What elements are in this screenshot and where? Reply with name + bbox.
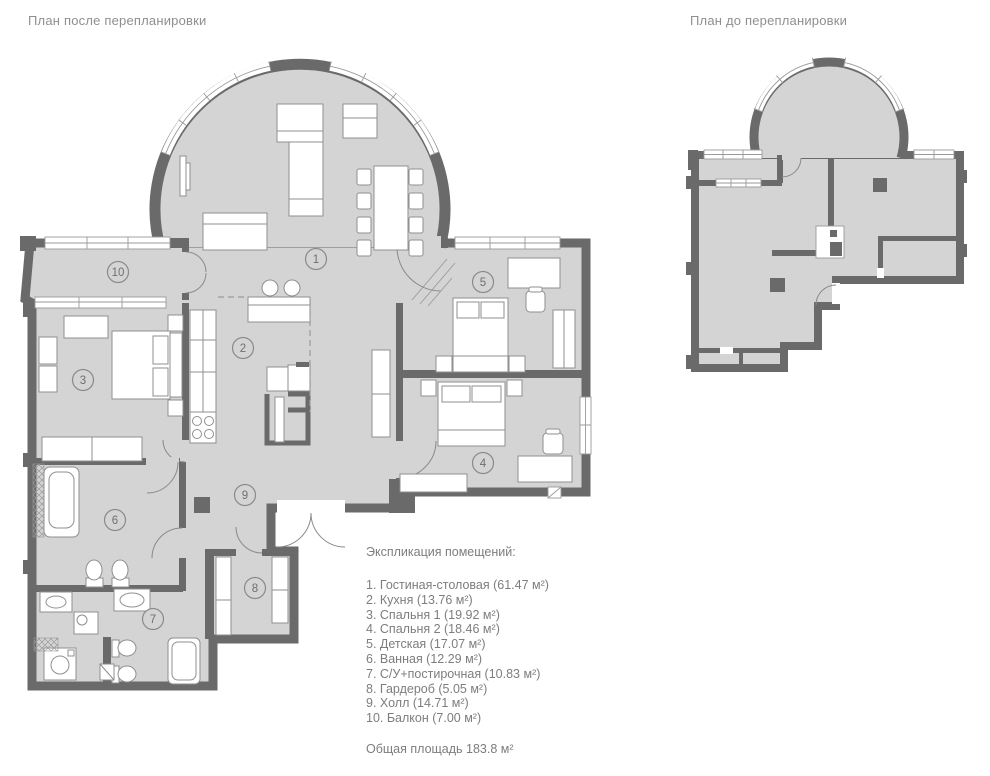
svg-text:8: 8 [252,583,258,595]
legend: Экспликация помещений: 1. Гостиная-столо… [366,545,606,756]
pillar [770,278,785,292]
nightstand [168,400,183,416]
nightstand [507,380,522,396]
pantry-shelf [275,397,284,442]
marker-room-4: 4 [473,453,494,474]
armchair [343,104,377,138]
room-hall-furniture [372,350,390,437]
old-shaft [816,226,844,258]
marker-room-10: 10 [108,262,129,283]
bar-counter [248,297,310,322]
nightstand [436,356,452,372]
legend-items: 1. Гостиная-столовая (61.47 м²) 2. Кухня… [366,578,606,726]
svg-text:4: 4 [480,458,487,470]
vanity [40,592,72,612]
pillar [873,178,887,192]
legend-item: 2. Кухня (13.76 м²) [366,593,606,608]
marker-room-7: 7 [143,609,164,630]
desk [508,258,560,288]
marker-room-3: 3 [73,370,94,391]
marker-room-1: 1 [306,249,327,270]
sink-counter [114,589,150,611]
svg-text:5: 5 [480,277,486,289]
sofa-2 [203,213,267,250]
legend-item: 5. Детская (17.07 м²) [366,637,606,652]
legend-item: 1. Гостиная-столовая (61.47 м²) [366,578,606,593]
plan-before [686,58,967,369]
svg-text:1: 1 [313,254,319,266]
dresser [64,316,108,338]
low-cabinet [400,474,467,492]
legend-item: 4. Спальня 2 (18.46 м²) [366,622,606,637]
chair [543,433,563,454]
legend-item: 9. Холл (14.71 м²) [366,696,606,711]
tile-strip [33,464,44,537]
marker-room-2: 2 [233,338,254,359]
entrance-door [277,500,345,547]
marker-room-8: 8 [245,578,266,599]
legend-total-area: Общая площадь 183.8 м² [366,742,606,756]
svg-text:10: 10 [112,267,125,279]
marker-room-5: 5 [473,272,494,293]
dining-table [374,166,408,250]
tv-unit [180,156,186,196]
fridge [267,367,288,391]
nightstand [168,315,183,331]
legend-item: 8. Гардероб (5.05 м²) [366,682,606,697]
bidet [112,666,136,683]
shelving [216,557,231,635]
legend-item: 6. Ванная (12.29 м²) [366,652,606,667]
nightstand [421,380,436,396]
toilet [112,640,136,657]
svg-text:2: 2 [240,343,246,355]
stove [190,412,216,443]
old-kitchen-wall [828,158,834,228]
dome-before [754,58,904,158]
bidet [112,560,129,587]
svg-text:9: 9 [242,490,248,502]
marker-room-6: 6 [105,510,126,531]
bar-stool [262,280,278,296]
washing-machine [44,648,76,680]
marker-room-9: 9 [235,485,256,506]
nightstand [509,356,525,372]
bedroom1-window [35,297,166,308]
desk [518,456,572,482]
legend-item: 7. С/У+постирочная (10.83 м²) [366,667,606,682]
legend-item: 3. Спальня 1 (19.92 м²) [366,608,606,623]
toilet [86,560,103,587]
chair [526,291,545,312]
svg-text:7: 7 [150,614,156,626]
svg-text:6: 6 [112,515,118,527]
legend-item: 10. Балкон (7.00 м²) [366,711,606,726]
bar-stool [284,280,300,296]
legend-title: Экспликация помещений: [366,545,606,559]
hall-pillar [194,497,210,513]
old-corridor-wall [878,236,960,241]
svg-text:3: 3 [80,375,86,387]
